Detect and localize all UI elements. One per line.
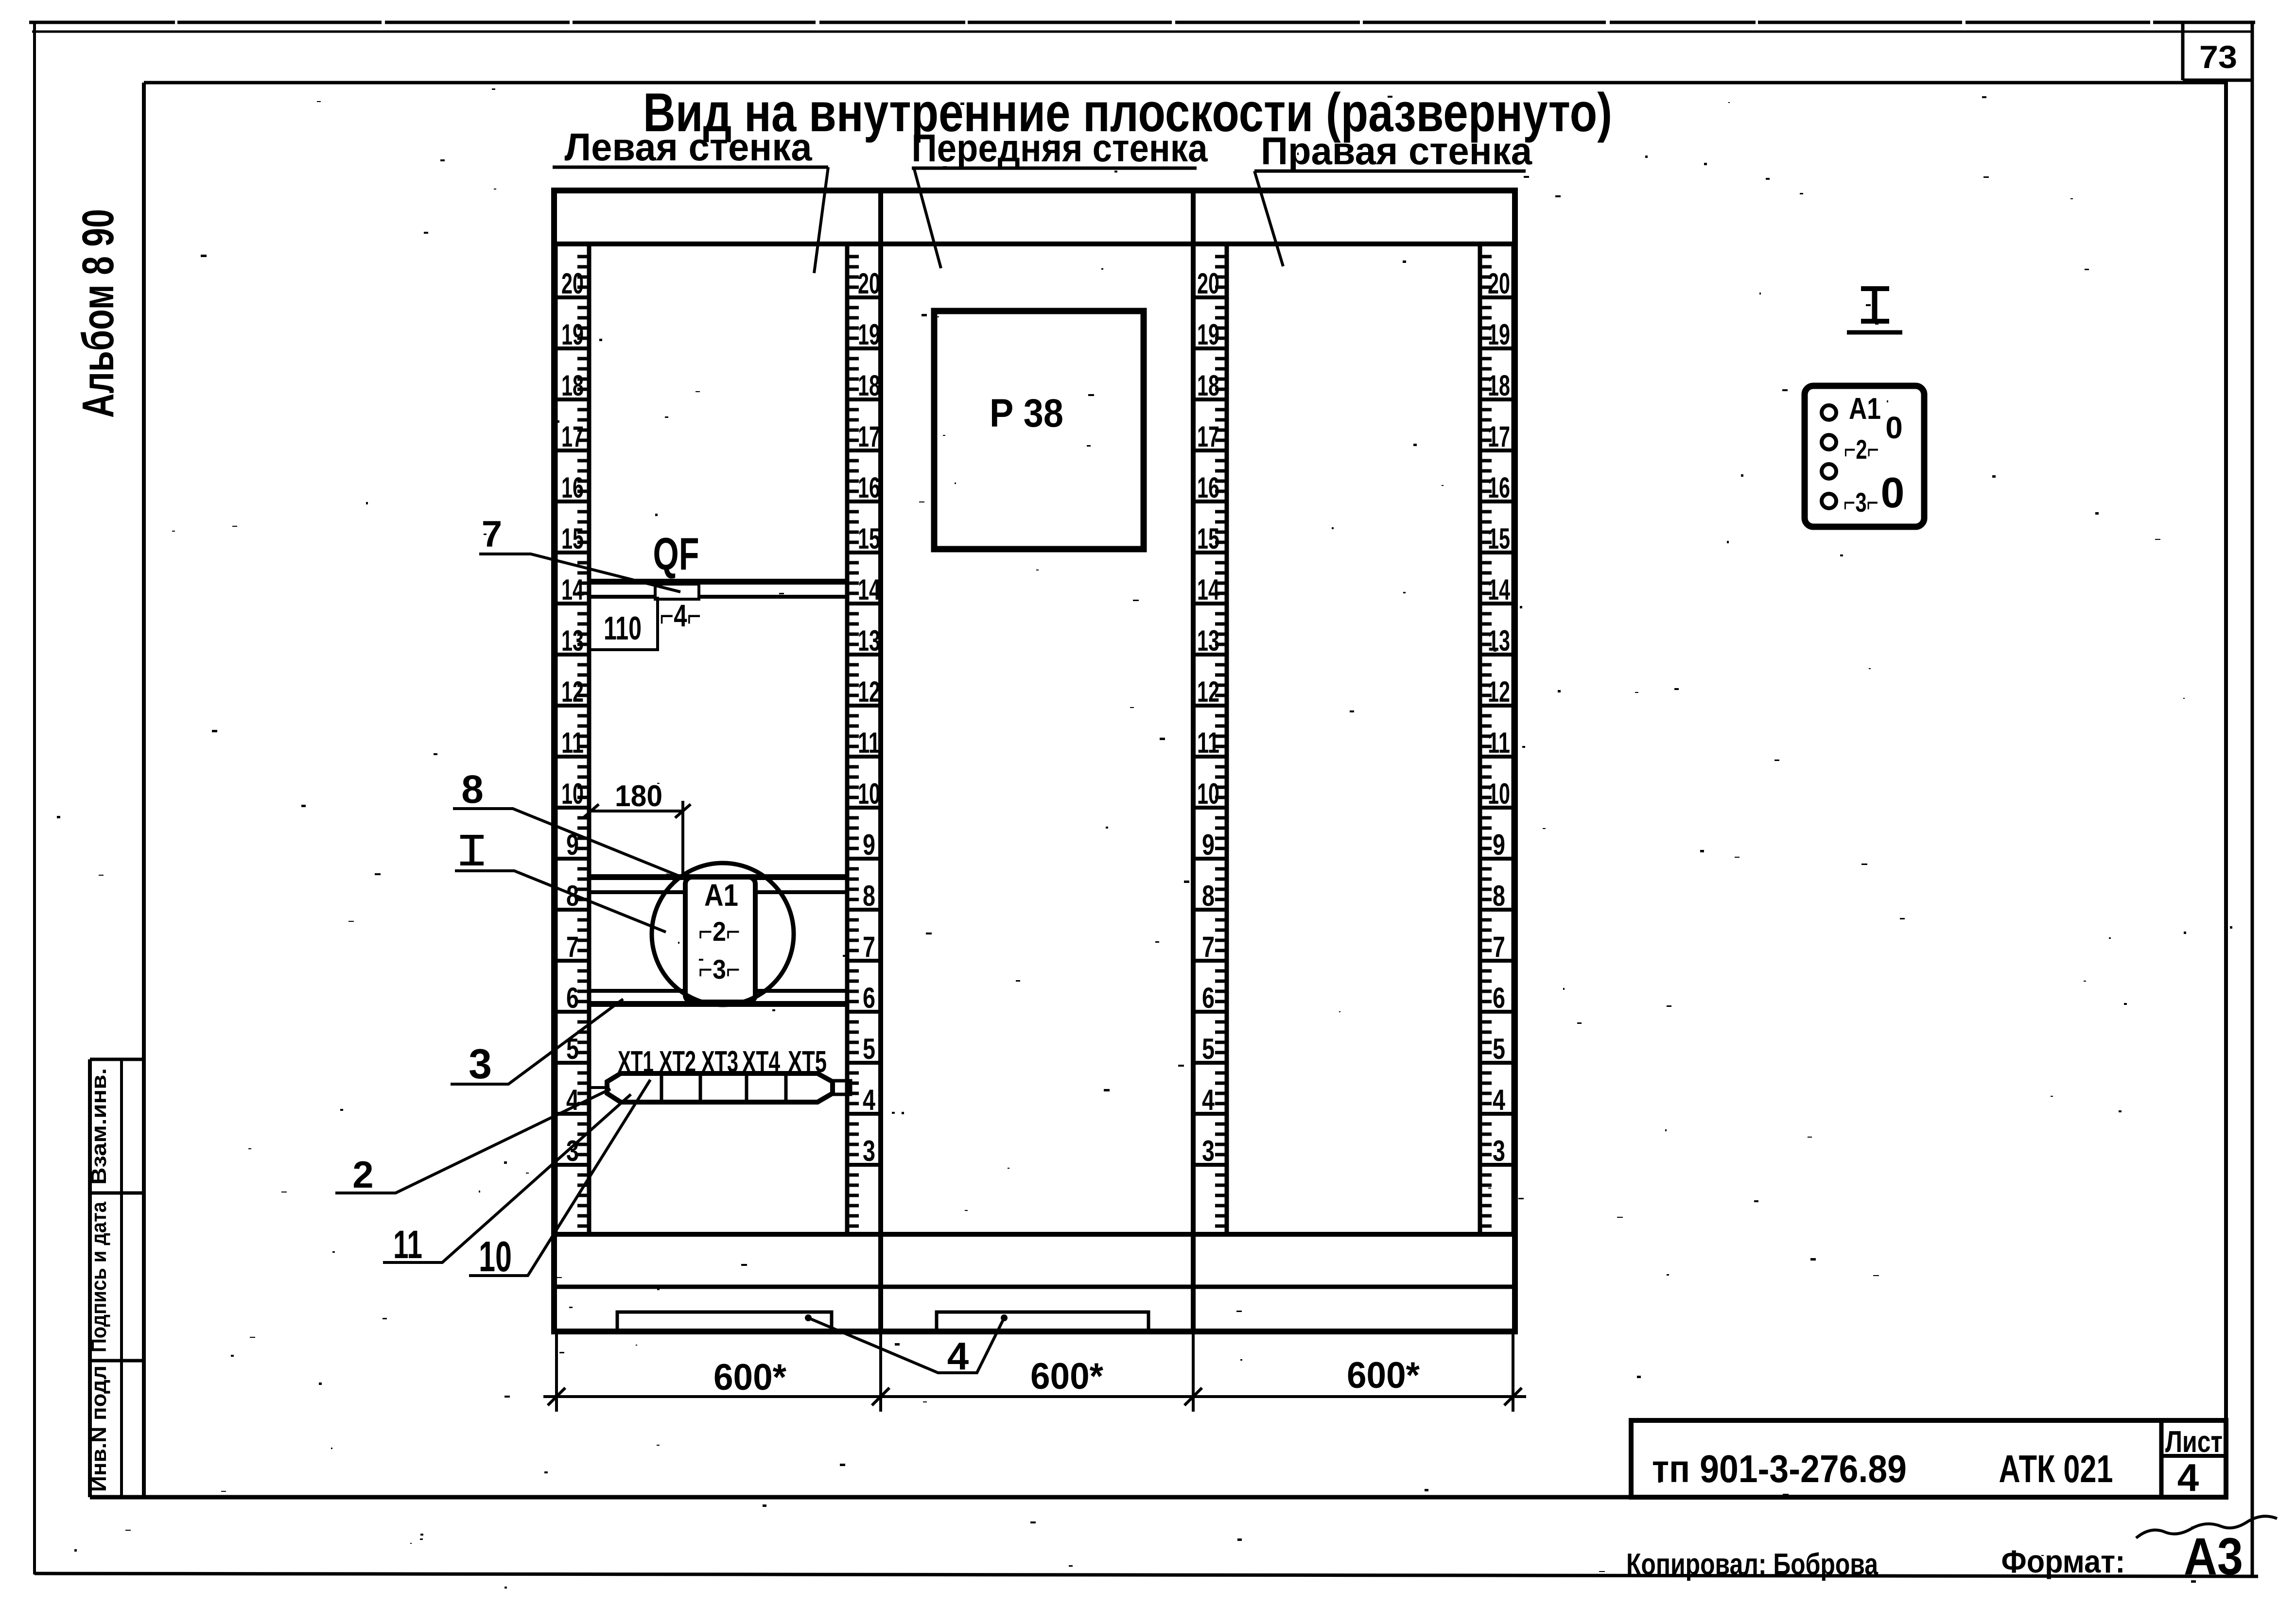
- svg-text:9: 9: [1493, 829, 1505, 861]
- svg-text:17: 17: [1197, 420, 1219, 453]
- svg-text:16: 16: [561, 471, 584, 504]
- svg-text:18: 18: [858, 369, 880, 402]
- svg-text:14: 14: [1197, 573, 1219, 606]
- svg-text:19: 19: [1488, 318, 1510, 351]
- svg-text:600*: 600*: [1030, 1356, 1103, 1397]
- svg-text:Р 38: Р 38: [990, 391, 1063, 435]
- svg-text:11: 11: [858, 726, 880, 759]
- svg-text:7: 7: [566, 931, 579, 963]
- svg-text:13: 13: [1197, 624, 1219, 657]
- svg-text:8: 8: [461, 767, 484, 812]
- svg-text:13: 13: [1488, 624, 1510, 657]
- svg-text:19: 19: [561, 318, 584, 351]
- svg-text:Взам.инв.: Взам.инв.: [87, 1068, 111, 1185]
- svg-text:7: 7: [1493, 931, 1505, 963]
- svg-text:8: 8: [1493, 880, 1505, 912]
- svg-text:20: 20: [1488, 267, 1510, 300]
- svg-text:18: 18: [561, 369, 584, 402]
- svg-text:17: 17: [561, 420, 584, 453]
- svg-text:18: 18: [1197, 369, 1219, 402]
- svg-text:12: 12: [1197, 675, 1219, 708]
- svg-text:0: 0: [1881, 468, 1905, 517]
- svg-text:8: 8: [863, 880, 875, 912]
- svg-text:180: 180: [615, 779, 662, 813]
- svg-text:4: 4: [566, 1084, 579, 1116]
- svg-text:6: 6: [1202, 982, 1215, 1014]
- svg-text:Инв.N подл: Инв.N подл: [87, 1365, 111, 1492]
- svg-text:15: 15: [858, 522, 880, 555]
- svg-text:13: 13: [858, 624, 880, 657]
- svg-text:14: 14: [1488, 573, 1510, 606]
- svg-text:5: 5: [1202, 1033, 1215, 1065]
- svg-text:А1: А1: [1849, 392, 1881, 426]
- svg-text:16: 16: [1197, 471, 1219, 504]
- svg-text:⌐2⌐: ⌐2⌐: [1844, 434, 1879, 465]
- svg-text:Левая стенка: Левая стенка: [565, 125, 812, 169]
- svg-text:18: 18: [1488, 369, 1510, 402]
- svg-text:600*: 600*: [1347, 1355, 1420, 1396]
- svg-text:3: 3: [1493, 1135, 1505, 1167]
- svg-text:15: 15: [1488, 522, 1510, 555]
- svg-text:⌐3⌐: ⌐3⌐: [1844, 487, 1879, 518]
- svg-text:17: 17: [858, 420, 880, 453]
- svg-text:⌐3⌐: ⌐3⌐: [698, 954, 740, 985]
- svg-text:600*: 600*: [713, 1357, 786, 1398]
- svg-text:4: 4: [1202, 1084, 1215, 1116]
- svg-text:⌐4⌐: ⌐4⌐: [660, 598, 701, 633]
- svg-text:3: 3: [469, 1041, 492, 1088]
- svg-text:14: 14: [858, 573, 880, 606]
- svg-text:Формат:: Формат:: [2001, 1543, 2125, 1579]
- svg-text:8: 8: [1202, 880, 1215, 912]
- svg-text:10: 10: [858, 778, 880, 810]
- svg-text:6: 6: [1493, 982, 1505, 1014]
- svg-text:20: 20: [1197, 267, 1219, 300]
- svg-text:А3: А3: [2184, 1527, 2243, 1586]
- svg-text:7: 7: [1202, 931, 1215, 963]
- svg-text:10: 10: [561, 778, 584, 810]
- svg-text:9: 9: [863, 829, 875, 861]
- svg-text:13: 13: [561, 624, 584, 657]
- svg-text:19: 19: [1197, 318, 1219, 351]
- svg-text:QF: QF: [653, 528, 699, 579]
- svg-text:АТК 021: АТК 021: [1999, 1447, 2113, 1490]
- svg-text:6: 6: [566, 982, 579, 1014]
- svg-text:10: 10: [1488, 778, 1510, 810]
- svg-text:Копировал: Боброва: Копировал: Боброва: [1626, 1548, 1878, 1581]
- svg-text:Передняя стенка: Передняя стенка: [912, 126, 1208, 170]
- svg-text:4: 4: [1493, 1084, 1505, 1116]
- svg-text:4: 4: [863, 1084, 875, 1116]
- svg-text:тп 901-3-276.89: тп 901-3-276.89: [1652, 1447, 1907, 1490]
- svg-text:⌐2⌐: ⌐2⌐: [698, 916, 740, 947]
- svg-text:12: 12: [858, 675, 880, 708]
- svg-text:19: 19: [858, 318, 880, 351]
- svg-text:110: 110: [604, 610, 642, 647]
- svg-text:7: 7: [863, 931, 875, 963]
- svg-text:12: 12: [561, 675, 584, 708]
- svg-text:14: 14: [561, 573, 584, 606]
- svg-text:5: 5: [1493, 1033, 1505, 1065]
- svg-text:11: 11: [561, 726, 584, 759]
- svg-text:Правая стенка: Правая стенка: [1261, 129, 1532, 173]
- svg-text:20: 20: [858, 267, 880, 300]
- svg-text:10: 10: [1197, 778, 1219, 810]
- svg-text:20: 20: [561, 267, 584, 300]
- svg-text:11: 11: [1197, 726, 1219, 759]
- svg-text:12: 12: [1488, 675, 1510, 708]
- svg-text:2: 2: [352, 1153, 373, 1196]
- svg-text:3: 3: [863, 1135, 875, 1167]
- svg-text:11: 11: [1488, 726, 1510, 759]
- svg-text:6: 6: [863, 982, 875, 1014]
- svg-text:Альбом 8 90: Альбом 8 90: [73, 209, 123, 418]
- svg-text:5: 5: [863, 1033, 875, 1065]
- svg-text:15: 15: [561, 522, 584, 555]
- svg-text:Лист: Лист: [2165, 1425, 2223, 1459]
- svg-text:Подпись и дата: Подпись и дата: [87, 1202, 111, 1352]
- svg-text:4: 4: [2177, 1456, 2199, 1499]
- svg-text:11: 11: [393, 1223, 422, 1267]
- svg-text:73: 73: [2199, 39, 2237, 75]
- svg-text:4: 4: [947, 1334, 969, 1378]
- svg-text:0: 0: [1885, 410, 1903, 445]
- svg-text:16: 16: [858, 471, 880, 504]
- svg-text:17: 17: [1488, 420, 1510, 453]
- svg-text:16: 16: [1488, 471, 1510, 504]
- svg-text:10: 10: [479, 1232, 512, 1280]
- svg-text:9: 9: [1202, 829, 1215, 861]
- svg-text:3: 3: [1202, 1135, 1215, 1167]
- svg-text:А1: А1: [704, 878, 738, 913]
- svg-text:15: 15: [1197, 522, 1219, 555]
